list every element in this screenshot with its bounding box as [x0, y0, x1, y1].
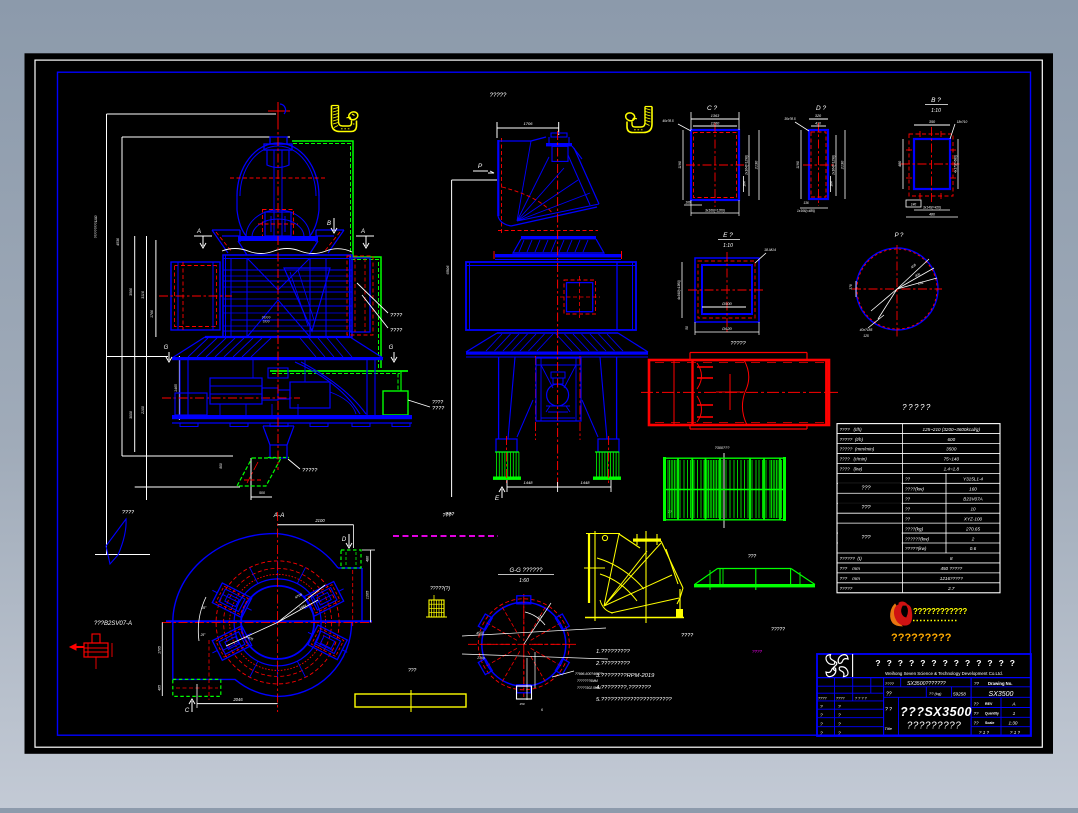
svg-text:150: 150 [519, 702, 524, 706]
svg-text:410: 410 [815, 122, 821, 126]
svg-text:????: ???? [432, 406, 445, 412]
svg-text:2x164(=1298): 2x164(=1298) [745, 155, 749, 176]
svg-text:???SX3500: ???SX3500 [900, 705, 972, 719]
svg-text:B: B [327, 221, 331, 227]
svg-text:??: ?? [905, 496, 911, 501]
svg-text:480: 480 [366, 555, 370, 562]
svg-text:????(kw): ????(kw) [905, 487, 924, 492]
svg-text:? 1 ?: ? 1 ? [1010, 730, 1021, 735]
svg-text:3x140(=420): 3x140(=420) [923, 206, 941, 210]
svg-text:G: G [389, 345, 394, 351]
svg-text:2x164(=1298): 2x164(=1298) [832, 155, 836, 176]
svg-text:1216?????: 1216????? [940, 576, 963, 581]
svg-text:? ?: ? ? [885, 707, 892, 713]
svg-text:?: ? [987, 658, 992, 668]
svg-text:?: ? [976, 658, 981, 668]
svg-text:?: ? [909, 658, 914, 668]
svg-text:40x?185: 40x?185 [860, 328, 873, 332]
svg-text:????? (mm/min): ????? (mm/min) [840, 447, 875, 452]
svg-text:??????(kw): ??????(kw) [905, 536, 929, 541]
svg-text:D620: D620 [722, 326, 732, 331]
svg-text:?: ? [898, 658, 903, 668]
svg-text:????: ???? [122, 510, 135, 516]
svg-text:????: ???? [432, 400, 443, 406]
svg-text:1448: 1448 [524, 480, 534, 485]
svg-text:????? (t/h): ????? (t/h) [840, 437, 864, 442]
svg-text:D: D [342, 537, 347, 543]
svg-text:320: 320 [815, 114, 822, 118]
svg-text:18-M14: 18-M14 [764, 248, 776, 252]
svg-text:Weihong Seven Science & Techno: Weihong Seven Science & Technology Devel… [885, 671, 1003, 676]
svg-text:????: ???? [818, 697, 827, 701]
svg-text:D500: D500 [722, 301, 732, 306]
svg-text:1.?????????: 1.????????? [596, 649, 631, 655]
svg-text:? 1 ?: ? 1 ? [979, 730, 990, 735]
svg-text:?: ? [820, 721, 823, 727]
svg-text:?????(kw): ?????(kw) [905, 546, 927, 551]
svg-text:?: ? [820, 704, 823, 710]
svg-text:?: ? [920, 658, 925, 668]
svg-text:??: ?? [905, 516, 911, 521]
svg-text:480: 480 [929, 213, 935, 217]
svg-text:????: ???? [390, 313, 403, 319]
svg-text:?????????: ????????? [907, 721, 962, 732]
svg-text:136: 136 [803, 201, 809, 205]
svg-text:3500: 3500 [946, 447, 957, 452]
svg-text:P: P [478, 163, 483, 170]
svg-text:?: ? [838, 721, 841, 727]
svg-text:SX3500: SX3500 [989, 691, 1014, 698]
svg-text:3x166(=1200): 3x166(=1200) [705, 209, 725, 213]
svg-text:1260: 1260 [711, 122, 720, 126]
svg-text:?: ? [943, 658, 948, 668]
svg-text:1:10: 1:10 [723, 243, 733, 249]
svg-text:6: 6 [541, 708, 543, 712]
svg-text:2.7: 2.7 [947, 586, 955, 591]
svg-text:???: ??? [861, 535, 871, 541]
svg-text:REV: REV [985, 702, 993, 706]
svg-text:140: 140 [911, 203, 917, 207]
svg-text:10: 10 [970, 506, 976, 511]
svg-text:480: 480 [898, 160, 902, 167]
svg-text:1:10: 1:10 [931, 108, 941, 114]
svg-text:600: 600 [947, 437, 955, 442]
svg-text:1706: 1706 [524, 121, 534, 126]
svg-text:??? mm: ??? mm [840, 576, 861, 581]
svg-text:G: G [164, 345, 169, 351]
svg-text:????: ???? [390, 328, 403, 334]
svg-text:3008: 3008 [129, 411, 133, 419]
svg-text:2100: 2100 [314, 518, 325, 523]
svg-text:465: 465 [157, 685, 161, 691]
svg-text:270.65: 270.65 [965, 526, 980, 531]
svg-text:??: ?? [974, 711, 980, 716]
svg-text:Y315L1-4: Y315L1-4 [963, 477, 983, 482]
svg-text:Quantity: Quantity [985, 712, 999, 716]
svg-text:8: 8 [950, 556, 953, 561]
svg-text:G-G ??????: G-G ?????? [509, 568, 543, 574]
svg-text:????????????: ???????????? [913, 607, 967, 616]
svg-text:????: ???? [752, 649, 763, 654]
svg-text:500: 500 [259, 491, 265, 495]
svg-text:A: A [1011, 701, 1015, 707]
svg-text:???????5MM: ???????5MM [577, 679, 598, 683]
svg-text:???: ??? [861, 485, 871, 491]
svg-text:SX3500???????: SX3500??????? [907, 681, 946, 687]
svg-text:1766: 1766 [150, 310, 154, 318]
svg-text:A: A [360, 229, 365, 235]
svg-text:A-A: A-A [273, 512, 285, 519]
svg-text:2130: 2130 [755, 160, 759, 170]
svg-text:?: ? [838, 712, 841, 718]
svg-text:1.4~1.8: 1.4~1.8 [944, 467, 960, 472]
svg-text:?: ? [820, 712, 823, 718]
svg-text:?????(?): ?????(?) [430, 586, 450, 592]
svg-text:??: ?? [905, 506, 911, 511]
svg-text:75~140: 75~140 [944, 457, 960, 462]
svg-text:XYZ-100: XYZ-100 [963, 516, 983, 521]
svg-text:?????: ????? [490, 93, 507, 99]
svg-text:C: C [185, 708, 190, 714]
svg-text:1: 1 [1013, 711, 1016, 717]
svg-text:?: ? [838, 704, 841, 710]
svg-text:?? (kg): ?? (kg) [929, 691, 942, 696]
svg-text:C ?: C ? [707, 105, 718, 112]
svg-text:164: 164 [743, 181, 747, 187]
svg-text:3566: 3566 [129, 288, 133, 296]
svg-text:?????: ????? [902, 403, 932, 412]
svg-text:???: ??? [748, 554, 757, 560]
svg-text:4536: 4536 [116, 238, 120, 246]
svg-text:0.6: 0.6 [970, 546, 977, 551]
svg-text:?: ? [887, 658, 892, 668]
svg-text:???? (r/min): ???? (r/min) [840, 457, 868, 462]
svg-text:??: ?? [974, 701, 980, 706]
svg-text:Scale: Scale [985, 721, 994, 725]
svg-text:59258: 59258 [953, 691, 966, 696]
svg-text:378: 378 [849, 284, 853, 290]
svg-text:1:30: 1:30 [1009, 721, 1018, 726]
svg-text:?????????1100: ?????????1100 [94, 215, 98, 238]
svg-text:3116: 3116 [141, 291, 145, 299]
svg-text:? ? ? ?: ? ? ? ? [855, 697, 867, 701]
svg-text:800: 800 [219, 463, 223, 469]
svg-text:1:60: 1:60 [519, 578, 529, 584]
svg-text:1705: 1705 [157, 646, 161, 654]
svg-text:18x?10: 18x?10 [957, 120, 968, 124]
svg-text:2100: 2100 [141, 406, 145, 415]
svg-text:1363: 1363 [711, 114, 720, 118]
svg-text:1x166(=485): 1x166(=485) [797, 209, 815, 213]
svg-text:???: ??? [861, 505, 871, 511]
svg-text:????: ???? [262, 320, 269, 324]
svg-text:125: 125 [863, 334, 869, 338]
svg-text:B ?: B ? [931, 97, 941, 104]
svg-text:B23V07A: B23V07A [963, 496, 982, 501]
svg-text:??: ?? [905, 477, 911, 482]
svg-text:2.?????????: 2.????????? [595, 661, 631, 667]
svg-text:?: ? [820, 730, 823, 736]
svg-text:4500: 4500 [476, 631, 484, 635]
svg-text:D ?: D ? [816, 105, 827, 112]
svg-text:3.????????RPM-2019: 3.????????RPM-2019 [596, 673, 655, 679]
svg-text:?????????: ????????? [891, 632, 952, 644]
svg-text:??: ?? [974, 721, 980, 726]
svg-text:25°: 25° [200, 633, 207, 637]
svg-text:1465: 1465 [174, 384, 178, 392]
svg-text:????: ???? [681, 633, 694, 639]
svg-text:??: ?? [974, 681, 980, 686]
svg-text:???B2SV07-A: ???B2SV07-A [94, 621, 132, 627]
svg-text:?: ? [965, 658, 970, 668]
svg-text:E: E [495, 495, 500, 502]
svg-text:??? mm: ??? mm [840, 566, 861, 571]
svg-text:?????: ????? [730, 341, 746, 347]
svg-text:Drawing No.: Drawing No. [988, 681, 1012, 686]
svg-text:1190: 1190 [678, 161, 682, 169]
svg-text:?????? (t): ?????? (t) [840, 556, 863, 561]
svg-text:?300???: ?300??? [715, 446, 731, 450]
svg-text:?: ? [1010, 658, 1015, 668]
svg-text:350: 350 [929, 120, 936, 124]
svg-text:P ?: P ? [895, 233, 904, 239]
svg-text:4x170(=680): 4x170(=680) [954, 155, 958, 173]
svg-text:???: ??? [442, 513, 452, 519]
svg-text:2046: 2046 [232, 697, 243, 702]
svg-text:450 ?????: 450 ????? [940, 566, 962, 571]
svg-text:???? (t/h): ???? (t/h) [840, 427, 863, 432]
svg-text:2130: 2130 [841, 160, 845, 170]
svg-text:6506: 6506 [445, 265, 450, 275]
svg-text:????: ???? [836, 697, 845, 701]
svg-text:1205: 1205 [366, 590, 370, 599]
svg-text:4x340(=1360): 4x340(=1360) [677, 280, 681, 300]
svg-text:?: ? [931, 658, 936, 668]
svg-text:Title: Title [885, 726, 893, 731]
svg-text:?: ? [838, 730, 841, 736]
svg-text:????(kg): ????(kg) [905, 526, 924, 531]
svg-text:2: 2 [971, 536, 975, 541]
svg-text:1448: 1448 [581, 480, 591, 485]
svg-text:?: ? [999, 658, 1004, 668]
svg-text:????: ???? [885, 681, 895, 686]
svg-text:164: 164 [830, 181, 834, 187]
svg-text:???? (kw): ???? (kw) [840, 467, 863, 472]
svg-text:1190: 1190 [796, 161, 800, 169]
svg-text:?????: ????? [302, 468, 318, 474]
svg-text:5.??????????????????????: 5.?????????????????????? [596, 697, 673, 703]
svg-text:?????: ????? [771, 627, 785, 633]
svg-text:?????: ????? [840, 586, 853, 591]
svg-text:???: ??? [408, 668, 417, 674]
svg-text:166: 166 [685, 201, 691, 205]
svg-text:E ?: E ? [723, 232, 733, 239]
svg-text:160: 160 [969, 487, 977, 492]
svg-text:2300: 2300 [476, 656, 485, 660]
svg-text:4.????????,???????: 4.????????,??????? [596, 685, 652, 691]
svg-text:A: A [196, 229, 201, 235]
svg-text:30x?8.5: 30x?8.5 [784, 117, 796, 121]
svg-text:50: 50 [685, 326, 689, 330]
svg-text:??: ?? [886, 692, 892, 698]
svg-text:?: ? [875, 658, 880, 668]
svg-text:125~210 (3200~3600kcal/g): 125~210 (3200~3600kcal/g) [923, 427, 981, 432]
svg-text:?: ? [954, 658, 959, 668]
svg-text:40x?8.5: 40x?8.5 [662, 119, 674, 123]
svg-text:35°: 35° [202, 606, 208, 610]
